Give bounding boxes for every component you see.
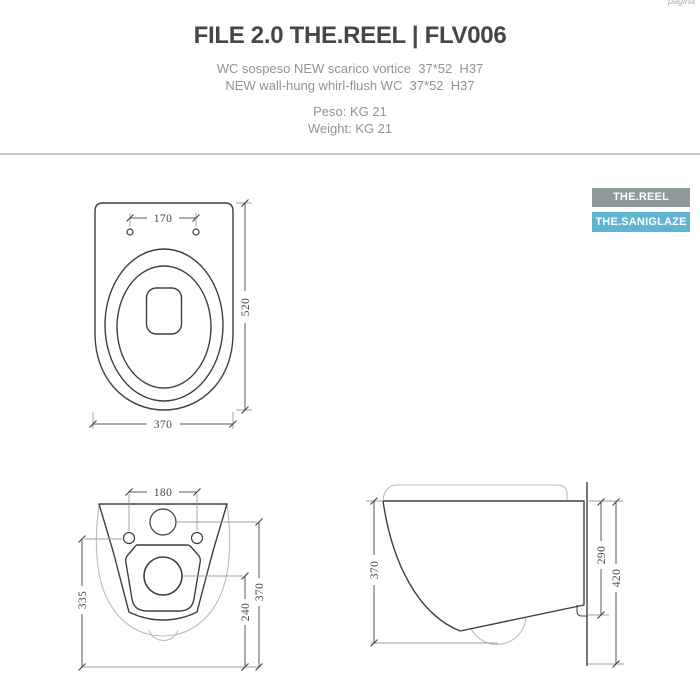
dim-label-180: 180 (154, 487, 172, 499)
dim-label-370-rear: 370 (254, 583, 266, 601)
subtitle-italian: WC sospeso NEW scarico vortice 37*52 H37 (0, 61, 700, 76)
corner-note-text: pagina (668, 0, 695, 6)
dim-label-335: 335 (77, 591, 89, 609)
dim-label-370-side: 370 (369, 561, 381, 579)
side-body-outline (383, 501, 584, 631)
drawing-rear-view: 180 335 370 240 (70, 485, 270, 680)
dimension-depth: 520 (236, 200, 252, 414)
mounting-hole-left (124, 533, 135, 544)
flush-opening (147, 288, 182, 334)
rear-view-body (96, 504, 229, 640)
dim-label-240: 240 (240, 603, 252, 621)
side-view-body (383, 482, 587, 666)
dim-label-290: 290 (596, 546, 608, 564)
dim-label-370-top: 370 (154, 419, 172, 431)
corner-note: pagina (668, 0, 695, 7)
dim-label-520: 520 (240, 298, 252, 316)
dimension-total-height: 420 (588, 499, 624, 668)
dim-label-170: 170 (154, 213, 172, 225)
seat-lid (383, 485, 567, 500)
datasheet-page: pagina FILE 2.0 THE.REEL | FLV006 WC sos… (0, 0, 700, 700)
badge-the-reel: THE.REEL (592, 188, 690, 207)
mounting-hole-right (192, 533, 203, 544)
top-view-body (95, 203, 233, 410)
mounting-hole-right (193, 229, 199, 235)
page-title: FILE 2.0 THE.REEL | FLV006 (0, 22, 700, 50)
mounting-hole-left (127, 229, 133, 235)
dimension-width: 370 (90, 412, 237, 431)
subtitle-english: NEW wall-hung whirl-flush WC 37*52 H37 (0, 78, 700, 93)
waste-outlet-circle (144, 557, 182, 595)
weight-english: Weight: KG 21 (0, 121, 700, 136)
drawing-side-view: 370 290 420 (360, 478, 635, 673)
header-divider (0, 153, 700, 155)
drawing-top-view: 170 520 370 (70, 195, 260, 440)
dimension-back-height: 290 (586, 499, 623, 619)
water-inlet-circle (150, 509, 176, 535)
weight-italian: Peso: KG 21 (0, 104, 700, 119)
dim-label-420: 420 (611, 569, 623, 587)
badge-the-saniglaze: THE.SANIGLAZE (592, 212, 690, 232)
